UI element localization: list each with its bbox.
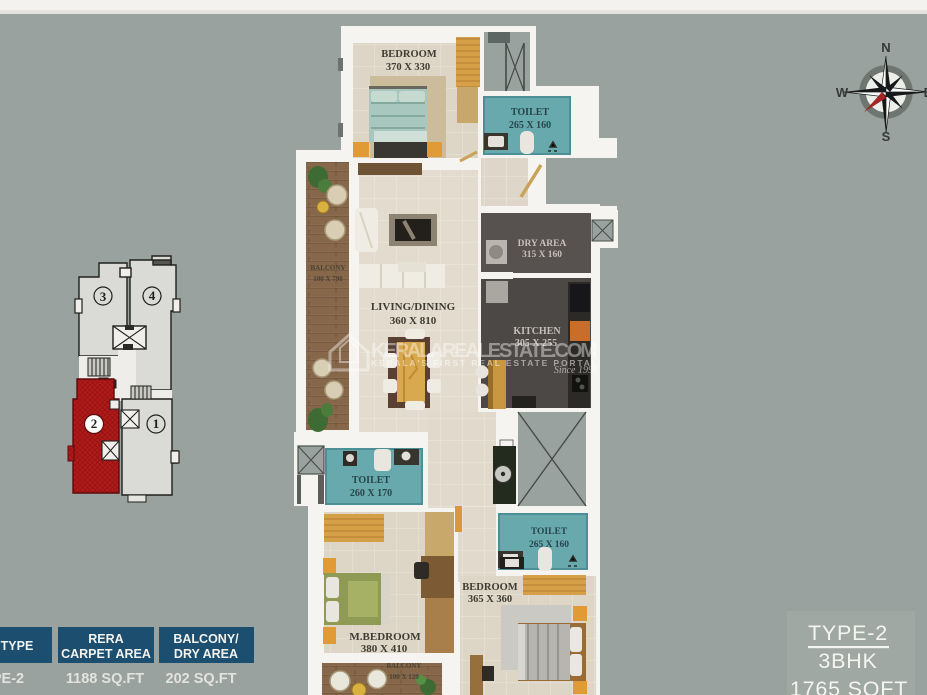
svg-text:315 X 160: 315 X 160 bbox=[522, 250, 562, 260]
svg-text:TOILET: TOILET bbox=[352, 475, 390, 486]
svg-text:BALCONY/: BALCONY/ bbox=[173, 632, 239, 646]
svg-text:KITCHEN: KITCHEN bbox=[513, 326, 561, 337]
svg-text:380 X 410: 380 X 410 bbox=[361, 643, 408, 655]
svg-text:202 SQ.FT: 202 SQ.FT bbox=[166, 671, 237, 687]
svg-text:360 X 810: 360 X 810 bbox=[390, 315, 437, 327]
svg-text:TOILET: TOILET bbox=[531, 527, 568, 537]
svg-text:N: N bbox=[881, 40, 890, 55]
svg-text:LIVING/DINING: LIVING/DINING bbox=[371, 301, 456, 313]
svg-text:260 X 170: 260 X 170 bbox=[350, 488, 392, 499]
svg-text:PE-2: PE-2 bbox=[0, 671, 24, 687]
svg-text:2: 2 bbox=[91, 416, 98, 431]
svg-text:100 X 120: 100 X 120 bbox=[389, 673, 419, 681]
svg-text:370 X 330: 370 X 330 bbox=[386, 62, 430, 73]
svg-text:M.BEDROOM: M.BEDROOM bbox=[349, 631, 421, 643]
svg-text:TOILET: TOILET bbox=[511, 107, 549, 118]
svg-text:RERA: RERA bbox=[88, 632, 123, 646]
svg-text:265 X 160: 265 X 160 bbox=[529, 540, 569, 550]
svg-text:BALCONY: BALCONY bbox=[386, 662, 421, 670]
svg-text:1: 1 bbox=[153, 416, 160, 431]
svg-text:DRY AREA: DRY AREA bbox=[174, 647, 238, 661]
svg-text:1188 SQ.FT: 1188 SQ.FT bbox=[66, 671, 144, 687]
svg-text:CARPET AREA: CARPET AREA bbox=[61, 647, 151, 661]
svg-text:3: 3 bbox=[100, 289, 107, 304]
svg-text:265 X 160: 265 X 160 bbox=[509, 120, 551, 131]
svg-text:365 X 360: 365 X 360 bbox=[468, 594, 512, 605]
svg-text:DRY AREA: DRY AREA bbox=[518, 239, 567, 249]
svg-text:1765 SQFT: 1765 SQFT bbox=[790, 677, 908, 695]
svg-text:BEDROOM: BEDROOM bbox=[381, 49, 437, 60]
svg-text:W: W bbox=[836, 85, 849, 100]
svg-text:BEDROOM: BEDROOM bbox=[462, 582, 518, 593]
svg-text:S: S bbox=[882, 129, 891, 144]
svg-text:4: 4 bbox=[149, 288, 156, 303]
svg-text:TYPE: TYPE bbox=[1, 639, 34, 653]
svg-text:100 X 790: 100 X 790 bbox=[313, 275, 343, 283]
svg-text:3BHK: 3BHK bbox=[818, 649, 877, 673]
svg-text:TYPE-2: TYPE-2 bbox=[808, 621, 888, 645]
svg-text:E: E bbox=[924, 85, 927, 100]
svg-text:BALCONY: BALCONY bbox=[310, 264, 345, 272]
svg-text:Since 1998: Since 1998 bbox=[554, 365, 598, 376]
